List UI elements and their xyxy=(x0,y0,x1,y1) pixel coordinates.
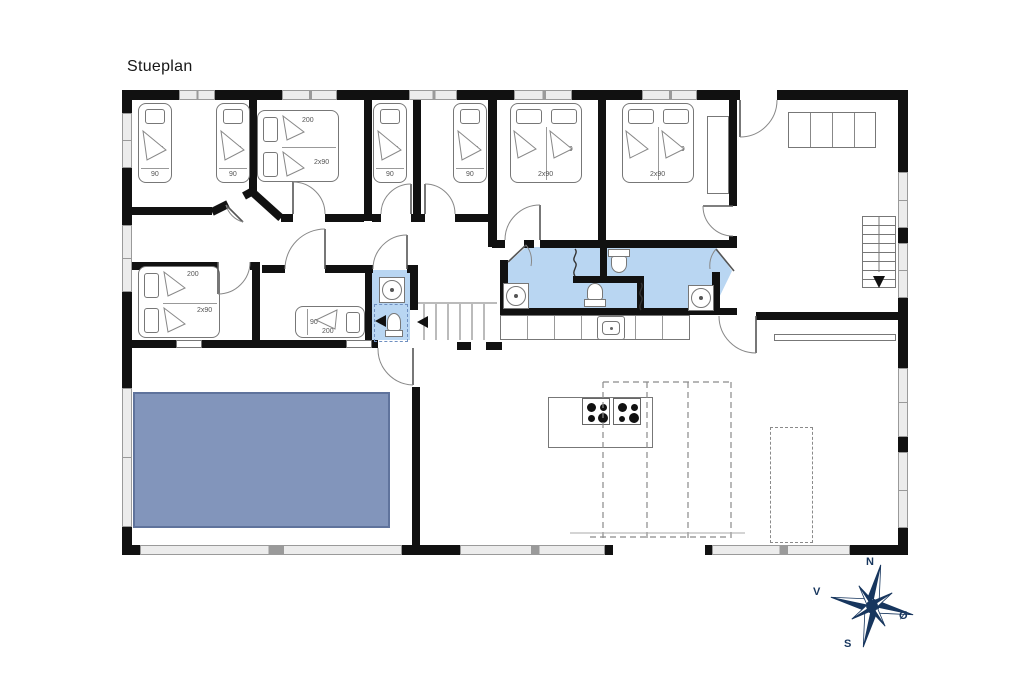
wall xyxy=(132,340,378,348)
wall xyxy=(132,207,212,215)
stair-treads xyxy=(424,304,484,340)
wall xyxy=(364,100,372,221)
wall xyxy=(325,214,364,222)
shower xyxy=(688,285,714,311)
wall xyxy=(411,214,425,222)
bed-foot-line xyxy=(307,309,308,335)
single-bed: 200 90 xyxy=(373,103,407,183)
single-bed: 200 90 xyxy=(138,103,172,183)
wall xyxy=(413,100,421,221)
burner xyxy=(598,413,608,423)
bed-width-label: 90 xyxy=(229,171,237,178)
single-bed: 200 90 xyxy=(453,103,487,183)
shower-drain xyxy=(514,294,518,298)
wall-diagonal xyxy=(250,190,281,218)
bed-length-label: 200 xyxy=(673,146,685,153)
door-arc xyxy=(425,184,455,214)
pillow xyxy=(144,308,159,333)
wall-diagonal xyxy=(244,191,253,196)
door-arc xyxy=(373,235,407,269)
wall xyxy=(249,100,257,191)
terrace-door-opening xyxy=(613,545,705,555)
pillow xyxy=(223,109,243,124)
bed-length-label: 200 xyxy=(230,146,242,153)
bed-width-label: 2x90 xyxy=(650,171,665,178)
burner xyxy=(629,413,639,423)
compass-north-label: N xyxy=(866,556,874,568)
door-leaf xyxy=(716,249,734,271)
compass-west-label: V xyxy=(813,586,820,598)
bed-length-label: 200 xyxy=(152,146,164,153)
swimming-pool xyxy=(133,392,390,528)
wardrobe xyxy=(707,116,729,194)
shower-drain xyxy=(699,296,703,300)
wall xyxy=(412,387,420,545)
wall xyxy=(486,342,502,350)
bed-width-label: 90 xyxy=(151,171,159,178)
door-arc xyxy=(381,184,411,214)
bed-foot-line xyxy=(376,168,404,169)
kitchen-sink xyxy=(597,316,625,340)
window xyxy=(140,545,402,555)
wall xyxy=(756,312,898,320)
burner xyxy=(619,416,625,422)
double-bed: 200 2x90 xyxy=(622,103,694,183)
compass-south-label: S xyxy=(844,638,851,650)
compass-rose-icon xyxy=(808,552,938,662)
burner xyxy=(588,415,595,422)
wall xyxy=(488,100,497,247)
single-bed: 90 200 xyxy=(295,306,365,338)
toilet-tank xyxy=(584,299,606,307)
cooktop xyxy=(582,398,610,425)
bed-length-label: 200 xyxy=(322,328,334,335)
bed-center-line xyxy=(282,147,336,148)
interior-window xyxy=(176,340,202,348)
door-arc xyxy=(378,348,413,385)
shower-curtain xyxy=(574,249,576,276)
double-bed: 200 2x90 xyxy=(138,266,220,338)
window xyxy=(898,368,908,437)
wall xyxy=(729,100,737,206)
bed-width-label: 90 xyxy=(386,171,394,178)
window xyxy=(898,172,908,228)
roof-opening-outline xyxy=(770,427,813,543)
pillow xyxy=(145,109,165,124)
entry-door-opening xyxy=(740,90,777,100)
door-arc xyxy=(505,205,540,240)
door-arc xyxy=(285,229,325,269)
pillow xyxy=(144,273,159,298)
window xyxy=(898,452,908,528)
wall xyxy=(372,214,381,222)
bed-foot-line xyxy=(219,168,247,169)
toilet-bowl xyxy=(611,256,627,273)
hall-closet xyxy=(788,112,876,148)
window xyxy=(122,225,132,292)
wall xyxy=(600,240,607,281)
pillow xyxy=(263,117,278,142)
stairs-down-arrow xyxy=(417,316,428,328)
pillow xyxy=(460,109,480,124)
door-arc xyxy=(710,249,716,269)
door-arc xyxy=(226,205,243,222)
wall xyxy=(457,342,471,350)
wall-diagonal xyxy=(212,204,228,212)
sink-drain xyxy=(610,327,613,330)
window xyxy=(179,90,215,100)
compass-east-label: Ø xyxy=(899,610,908,622)
wall xyxy=(540,240,737,248)
pillow xyxy=(263,152,278,177)
bed-length-label: 200 xyxy=(467,146,479,153)
interior-window xyxy=(346,340,372,348)
wall xyxy=(710,240,722,248)
kitchen-counter xyxy=(500,315,690,340)
window xyxy=(409,90,457,100)
shower-drain xyxy=(390,288,394,292)
pillow xyxy=(628,109,654,124)
bed-width-label: 2x90 xyxy=(197,307,212,314)
pillow xyxy=(346,312,360,333)
wall xyxy=(252,262,260,348)
door-arc xyxy=(703,206,733,236)
wall xyxy=(410,265,418,310)
window xyxy=(712,545,850,555)
toilet-clearance-outline xyxy=(374,304,408,342)
door-arc xyxy=(218,262,250,294)
window xyxy=(122,388,132,527)
window xyxy=(282,90,337,100)
bed-width-label: 2x90 xyxy=(538,171,553,178)
cooktop xyxy=(613,398,641,425)
window xyxy=(460,545,605,555)
bed-width-label: 2x90 xyxy=(314,159,329,166)
wall xyxy=(262,265,285,273)
pillow xyxy=(380,109,400,124)
wall xyxy=(492,240,505,248)
window xyxy=(642,90,697,100)
door-arc xyxy=(526,245,531,266)
bed-width-label: 90 xyxy=(310,319,318,326)
wall xyxy=(455,214,488,222)
staircase xyxy=(862,216,896,288)
burner xyxy=(600,404,607,411)
pillow xyxy=(516,109,542,124)
wall xyxy=(573,276,644,283)
window xyxy=(514,90,572,100)
shower xyxy=(503,283,529,309)
shower xyxy=(379,277,405,303)
plan-title: Stueplan xyxy=(127,58,193,76)
bed-foot-line xyxy=(456,168,484,169)
pillow xyxy=(663,109,689,124)
door-arc xyxy=(740,100,777,137)
door-leaf xyxy=(226,205,243,222)
wall xyxy=(365,265,372,348)
bed-length-label: 200 xyxy=(387,146,399,153)
sideboard xyxy=(774,334,896,341)
bed-length-label: 200 xyxy=(187,271,199,278)
window xyxy=(898,243,908,298)
door-arc xyxy=(293,182,325,214)
single-bed: 200 90 xyxy=(216,103,250,183)
bed-foot-line xyxy=(141,168,169,169)
window xyxy=(122,113,132,168)
bed-center-line xyxy=(163,303,217,304)
floor-plan: Stueplan xyxy=(0,0,1024,682)
double-bed: 200 2x90 xyxy=(510,103,582,183)
door-arc xyxy=(719,316,756,353)
burner xyxy=(587,403,596,412)
toilet-bowl xyxy=(587,283,603,300)
bed-width-label: 90 xyxy=(466,171,474,178)
double-bed: 200 2x90 xyxy=(257,110,339,182)
bed-length-label: 200 xyxy=(561,146,573,153)
bed-length-label: 200 xyxy=(302,117,314,124)
burner xyxy=(631,404,638,411)
pillow xyxy=(551,109,577,124)
wall xyxy=(524,240,534,248)
wall xyxy=(281,214,293,222)
burner xyxy=(618,403,627,412)
wall xyxy=(598,100,606,248)
